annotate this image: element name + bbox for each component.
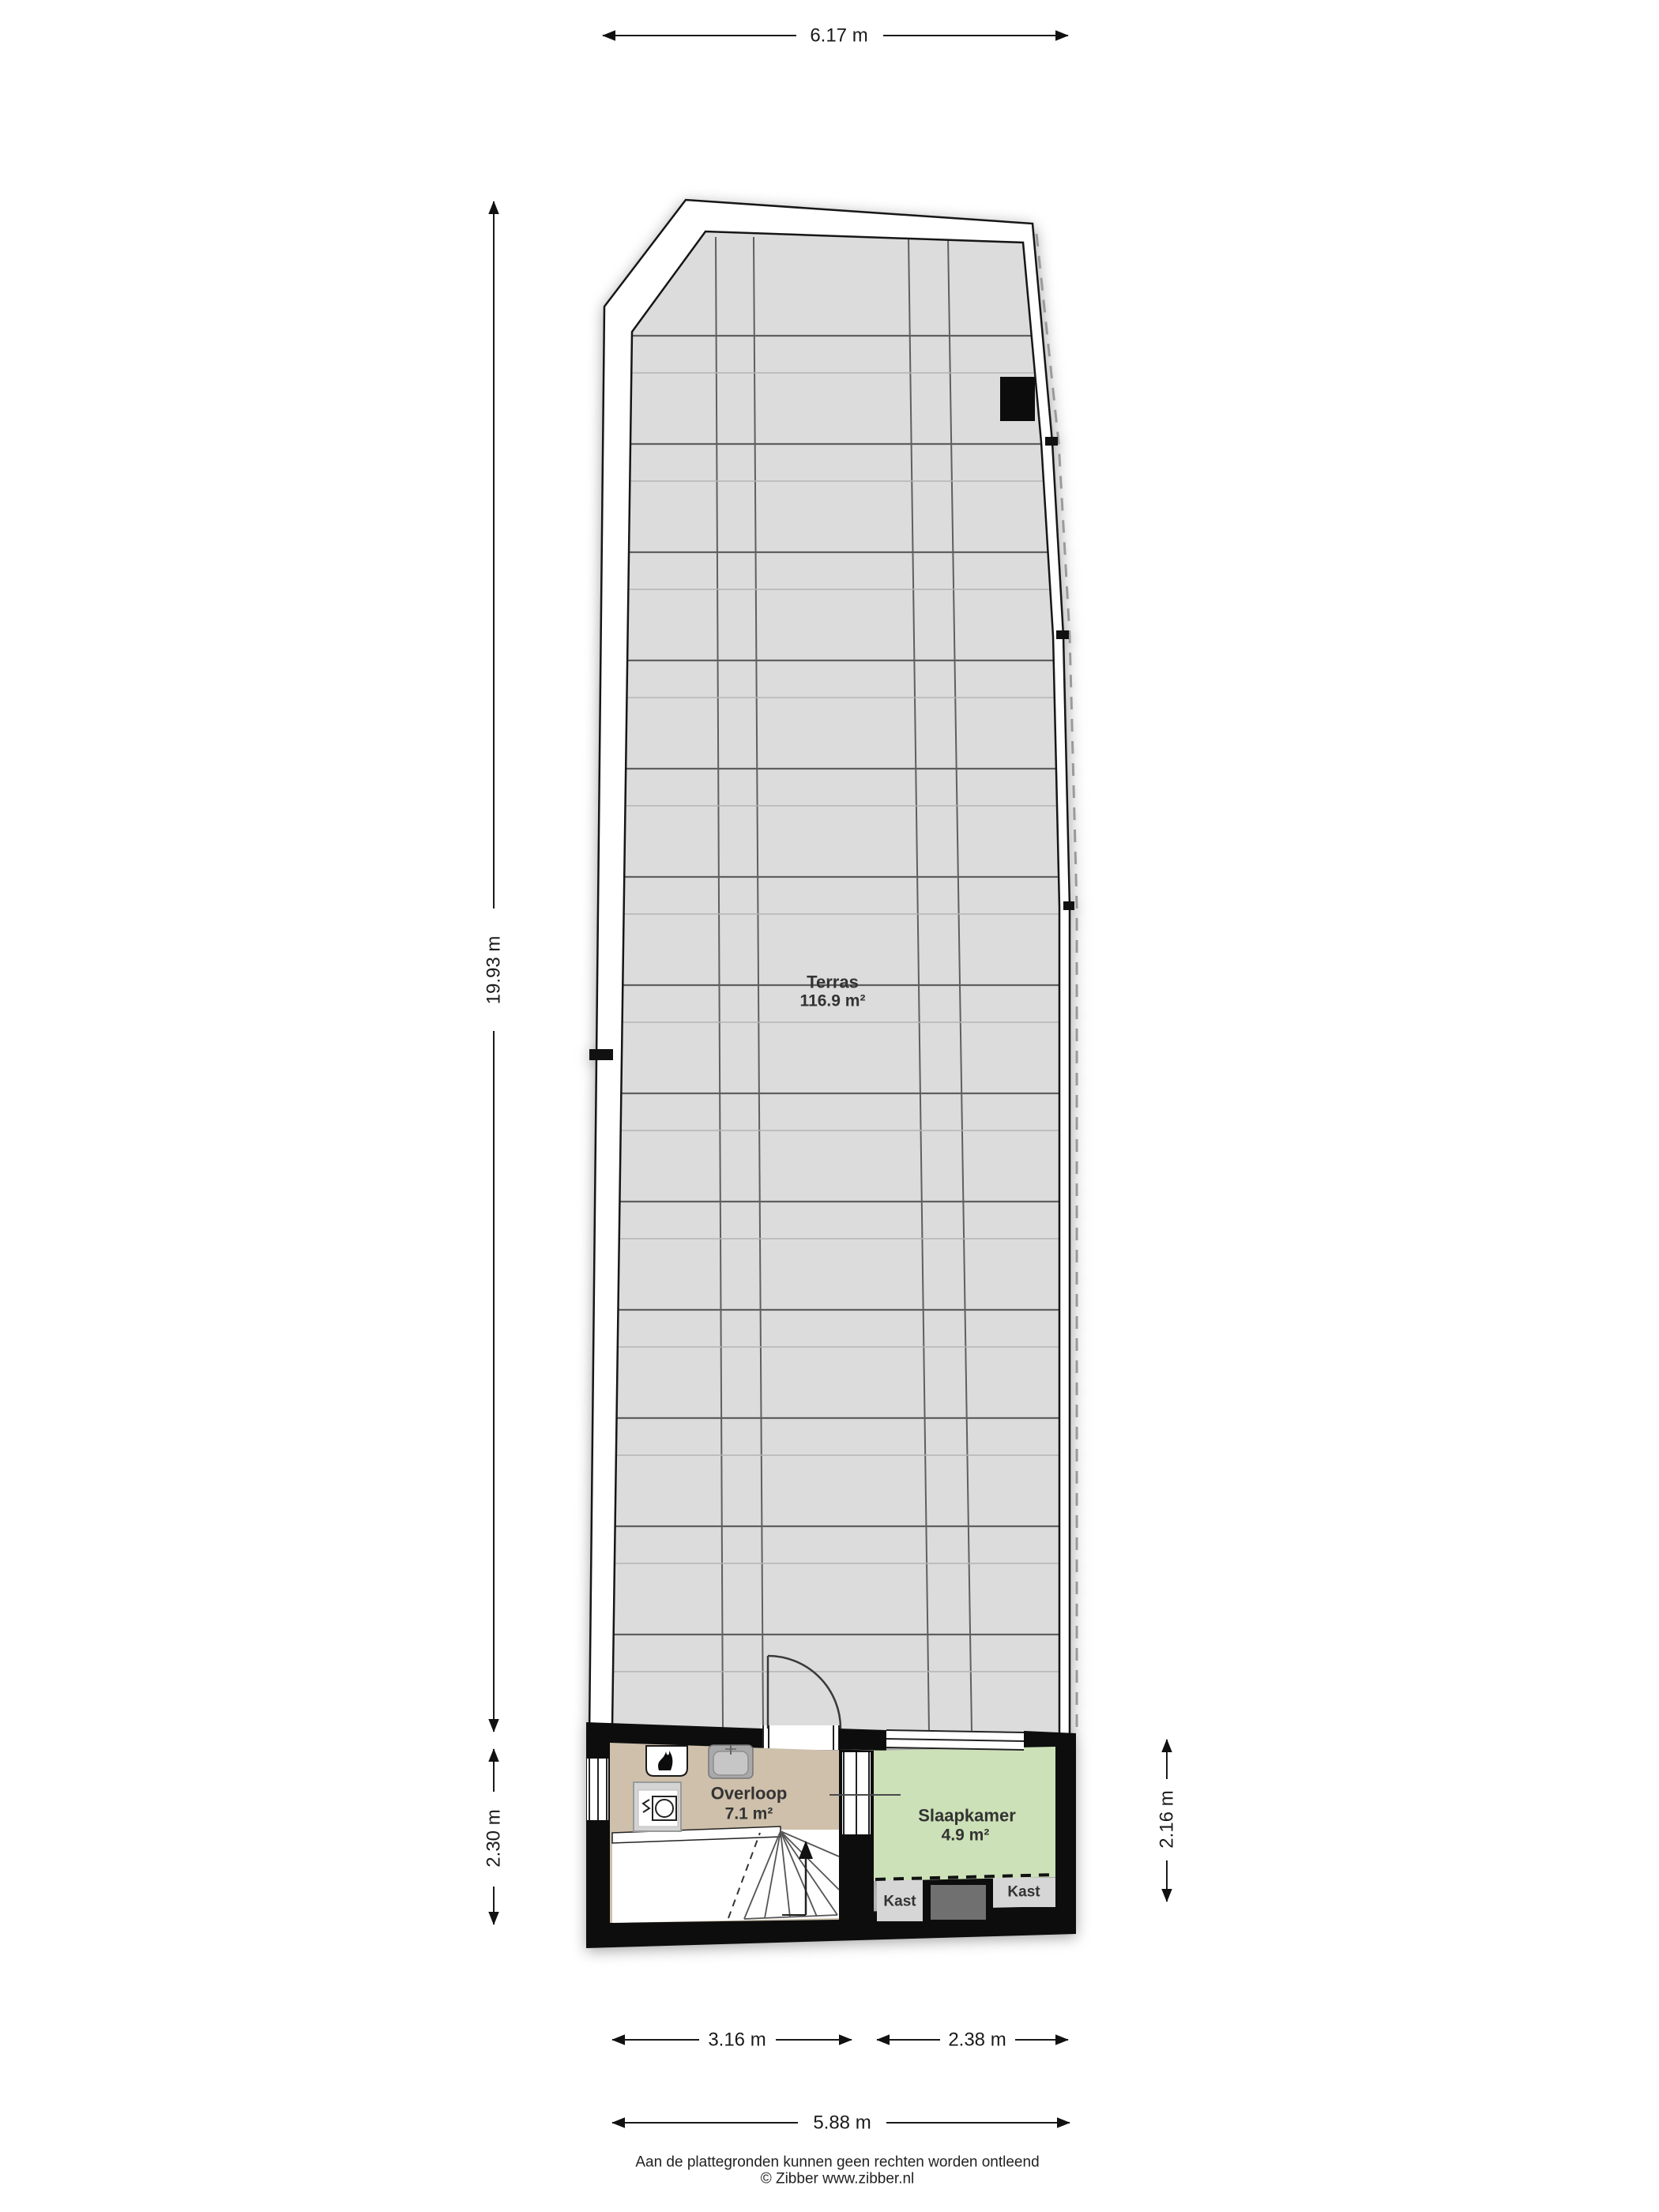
window-left-wall <box>587 1759 608 1820</box>
dimension-bottom-total-width: 5.88 m <box>612 2112 1070 2134</box>
slaapkamer-room-area: 4.9 m² <box>942 1826 990 1845</box>
svg-text:19.93 m: 19.93 m <box>483 936 505 1005</box>
duct-block <box>931 1885 986 1920</box>
overloop-room-name: Overloop <box>711 1784 788 1804</box>
dimension-top-width: 6.17 m <box>603 25 1068 47</box>
boiler-icon <box>646 1746 687 1776</box>
dimension-bottom-left-width: 3.16 m <box>612 2030 852 2051</box>
terras-room-name: Terras <box>807 972 859 992</box>
svg-text:2.38 m: 2.38 m <box>948 2030 1006 2051</box>
svg-text:5.88 m: 5.88 m <box>813 2112 871 2134</box>
footer-credit: © Zibber www.zibber.nl <box>761 2171 915 2188</box>
washing-machine-icon <box>634 1782 681 1831</box>
kast-right-label: Kast <box>1007 1884 1040 1901</box>
floorplan-canvas: Terras 116.9 m² Overloop 7.1 m² Slaapkam… <box>0 0 1659 2212</box>
svg-text:3.16 m: 3.16 m <box>708 2030 766 2051</box>
footer-disclaimer: Aan de plattegronden kunnen geen rechten… <box>635 2154 1039 2171</box>
dimension-terras-length: 19.93 m <box>483 201 505 1732</box>
terras-room-area: 116.9 m² <box>800 992 866 1010</box>
kast-left-label: Kast <box>883 1894 916 1910</box>
svg-text:6.17 m: 6.17 m <box>810 25 867 47</box>
slaapkamer-room-name: Slaapkamer <box>918 1806 1016 1826</box>
chimney-block <box>1000 377 1035 421</box>
overloop-room-area: 7.1 m² <box>725 1805 773 1823</box>
dimension-bedroom-depth: 2.16 m <box>1157 1740 1178 1902</box>
svg-text:2.16 m: 2.16 m <box>1157 1790 1178 1848</box>
door-threshold <box>761 1725 841 1750</box>
dimension-landing-depth: 2.30 m <box>483 1749 505 1924</box>
svg-text:2.30 m: 2.30 m <box>483 1809 505 1867</box>
sink-icon <box>709 1745 753 1778</box>
window-interior-divider <box>842 1752 871 1834</box>
dimension-bottom-right-width: 2.38 m <box>877 2030 1068 2051</box>
window-slaapkamer-top <box>886 1729 1024 1751</box>
building: Terras 116.9 m² Overloop 7.1 m² Slaapkam… <box>586 200 1077 1948</box>
